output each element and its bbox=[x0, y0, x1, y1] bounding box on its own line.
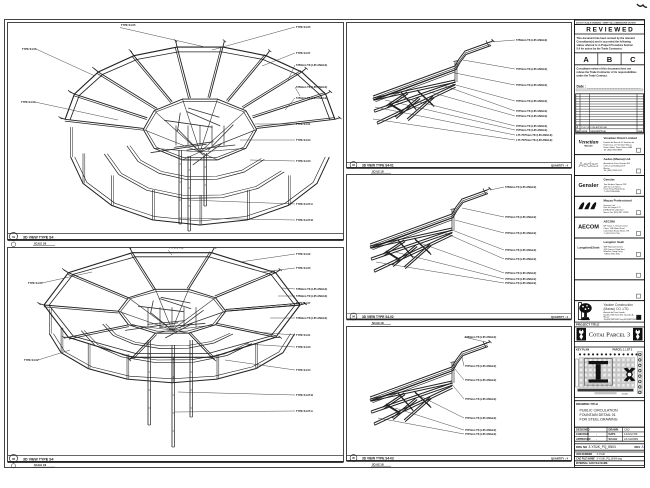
svg-text:7575mm TK (L65 ANGLE): 7575mm TK (L65 ANGLE) bbox=[465, 416, 496, 420]
svg-text:Macau Tel: (853) 287 12268: Macau Tel: (853) 287 12268 bbox=[604, 212, 630, 214]
svg-text:A: A bbox=[583, 55, 589, 64]
svg-text:7575mm TK (L65 ANGLE): 7575mm TK (L65 ANGLE) bbox=[465, 364, 496, 368]
svg-text:TYPE S4-02: TYPE S4-02 bbox=[21, 100, 36, 104]
svg-text:01: 01 bbox=[12, 235, 16, 239]
svg-text:TYPE S4-04: TYPE S4-04 bbox=[296, 368, 311, 372]
svg-text:3-YSUK_PQ_8N04: 3-YSUK_PQ_8N04 bbox=[589, 445, 617, 449]
svg-text:AECOM: AECOM bbox=[578, 225, 599, 231]
svg-text:7575mm TK (L65 ANGLE): 7575mm TK (L65 ANGLE) bbox=[516, 114, 547, 118]
svg-text:PROJECT TITLE: PROJECT TITLE bbox=[576, 323, 599, 327]
svg-text:(Macau) CO.,LTD.: (Macau) CO.,LTD. bbox=[604, 307, 630, 311]
svg-text:KEY PLAN: KEY PLAN bbox=[576, 347, 589, 351]
svg-text:DRG NO: DRG NO bbox=[576, 445, 588, 449]
svg-text:-: - bbox=[596, 438, 597, 441]
svg-text:R E V I E W E D: R E V I E W E D bbox=[586, 27, 633, 34]
svg-text:5759mm TK (L65 ANGLE): 5759mm TK (L65 ANGLE) bbox=[516, 38, 547, 42]
svg-text:7575mm TK (L65 ANGLE): 7575mm TK (L65 ANGLE) bbox=[465, 432, 496, 436]
svg-text:Aedas (Macau) Ltd.: Aedas (Macau) Ltd. bbox=[604, 157, 632, 161]
svg-text:7575mm TK (L65 ANGLE): 7575mm TK (L65 ANGLE) bbox=[505, 248, 536, 252]
svg-text:SCALE 1/8: SCALE 1/8 bbox=[34, 243, 47, 246]
svg-text:AECOM: AECOM bbox=[604, 219, 616, 223]
svg-text:5759mm TK (L65 ANGLE): 5759mm TK (L65 ANGLE) bbox=[296, 287, 327, 291]
svg-text:Venetian Orient Limited: Venetian Orient Limited bbox=[604, 136, 638, 140]
svg-text:TYPE S4-05 A: TYPE S4-05 A bbox=[296, 202, 313, 206]
svg-text:TYPE S4-01: TYPE S4-01 bbox=[296, 333, 311, 337]
svg-text:5.4 for action by the Trade Co: 5.4 for action by the Trade Contractor. bbox=[577, 47, 623, 51]
svg-text:Tel:(853)28972382 Fax:(853)28: Tel:(853)28972382 Fax:(853)28972383 bbox=[604, 319, 637, 321]
svg-text:SCALE 1/8: SCALE 1/8 bbox=[372, 463, 384, 466]
svg-text:7575mm TK (L65 ANGLE): 7575mm TK (L65 ANGLE) bbox=[505, 231, 536, 235]
svg-text:status referred to in Projec: status referred to in Project Procedure … bbox=[577, 43, 634, 47]
svg-text:5759mm TK (L65 ANGLE): 5759mm TK (L65 ANGLE) bbox=[296, 63, 327, 67]
svg-text:SCALE: SCALE bbox=[609, 437, 618, 441]
svg-text:TYPE S4-07: TYPE S4-07 bbox=[296, 51, 311, 55]
svg-text:3-YSUK_PQ_8N04.dwg: 3-YSUK_PQ_8N04.dwg bbox=[597, 458, 623, 461]
svg-text:7575mm TK (L65 ANGLE): 7575mm TK (L65 ANGLE) bbox=[516, 128, 547, 132]
svg-text:DATE: DATE bbox=[609, 432, 616, 436]
svg-text:5759mm TK (L65 ANGLE): 5759mm TK (L65 ANGLE) bbox=[296, 316, 327, 320]
svg-text:1:1000: 1:1000 bbox=[622, 394, 629, 396]
svg-text:7575mm TK (L65 ANGLE): 7575mm TK (L65 ANGLE) bbox=[516, 83, 547, 87]
svg-text:TYPE S4-05: TYPE S4-05 bbox=[22, 47, 37, 51]
svg-text:Langdon Seah: Langdon Seah bbox=[604, 240, 625, 244]
svg-text:TYPE S4-05: TYPE S4-05 bbox=[296, 25, 311, 29]
svg-text:T +852.2598.8500: T +852.2598.8500 bbox=[604, 191, 621, 193]
svg-text:DESIGNED: DESIGNED bbox=[576, 428, 590, 432]
svg-text:This document has been revised: This document has been revised by the re… bbox=[577, 36, 635, 40]
svg-text:REV: REV bbox=[635, 445, 641, 449]
svg-text:QUANTITY : 4: QUANTITY : 4 bbox=[551, 457, 569, 461]
svg-text:TYPE S4-01: TYPE S4-01 bbox=[296, 122, 311, 126]
svg-text:Langdon&Seah: Langdon&Seah bbox=[577, 246, 599, 250]
svg-text:relieve the Trade Contractor o: relieve the Trade Contractor of its resp… bbox=[577, 70, 638, 74]
svg-text:CAD FILE NAME: CAD FILE NAME bbox=[576, 458, 595, 461]
svg-text:3D VIEW TYPE S4-02: 3D VIEW TYPE S4-02 bbox=[362, 315, 394, 319]
svg-text:7575mm TK (L65 ANGLE): 7575mm TK (L65 ANGLE) bbox=[516, 109, 547, 113]
svg-text:TYPE S4-05 B: TYPE S4-05 B bbox=[296, 393, 313, 397]
svg-text:PUBLIC CIRCULATION: PUBLIC CIRCULATION bbox=[580, 408, 618, 412]
svg-text:CAD: CAD bbox=[624, 428, 630, 432]
svg-text:7575mm TK (L65 ANGLE): 7575mm TK (L65 ANGLE) bbox=[465, 397, 496, 401]
svg-text:A: A bbox=[577, 126, 579, 129]
svg-text:5759mm TK (L65 ANGLE): 5759mm TK (L65 ANGLE) bbox=[296, 96, 327, 100]
svg-text:QUANTITY : 4: QUANTITY : 4 bbox=[551, 315, 569, 319]
svg-text:JOB NUMBER: JOB NUMBER bbox=[576, 453, 592, 456]
svg-text:Macau Professional: Macau Professional bbox=[604, 199, 632, 203]
svg-text:Cᴏᴛᴀɪ Pᴀʀᴄᴇʟ 3: Cᴏᴛᴀɪ Pᴀʀᴄᴇʟ 3 bbox=[589, 332, 631, 339]
svg-text:TYPE S4-03: TYPE S4-03 bbox=[296, 159, 311, 163]
svg-text:C: C bbox=[630, 55, 636, 64]
svg-text:Gensler: Gensler bbox=[604, 178, 616, 182]
svg-text:TYPE S4-02: TYPE S4-02 bbox=[296, 252, 311, 256]
svg-text:-: - bbox=[596, 433, 597, 436]
svg-text:Consultant review of this docu: Consultant review of this document does … bbox=[577, 66, 632, 70]
svg-text:DESCRIPTION: DESCRIPTION bbox=[591, 131, 606, 133]
svg-text:T (852) 2830 3500: T (852) 2830 3500 bbox=[604, 254, 621, 256]
svg-text:DATE: DATE bbox=[582, 130, 588, 133]
svg-text:DRAWN: DRAWN bbox=[609, 428, 619, 432]
svg-text:7575mm TK (L65 ANGLE): 7575mm TK (L65 ANGLE) bbox=[505, 257, 536, 261]
svg-text:Date :: Date : bbox=[577, 85, 586, 89]
svg-text:PARCEL 1, LOT 2: PARCEL 1, LOT 2 bbox=[613, 348, 633, 351]
svg-text:FOUNTAIN DETAIL 01: FOUNTAIN DETAIL 01 bbox=[580, 413, 616, 417]
svg-text:AS SHOWN: AS SHOWN bbox=[624, 437, 638, 441]
svg-text:FOR STEEL DRAWING: FOR STEEL DRAWING bbox=[580, 418, 618, 422]
svg-text:SCALE 1/8: SCALE 1/8 bbox=[34, 464, 47, 467]
svg-text:INTERNAL CAD FILE NAME: INTERNAL CAD FILE NAME bbox=[576, 462, 608, 465]
svg-text:TYPE S4-02: TYPE S4-02 bbox=[24, 358, 39, 362]
svg-text:T +852 2317 7700: T +852 2317 7700 bbox=[604, 233, 621, 235]
svg-text:TYPE S4-05: TYPE S4-05 bbox=[28, 281, 43, 285]
svg-text:Venetian: Venetian bbox=[578, 139, 598, 145]
svg-text:FOR APPROVAL: FOR APPROVAL bbox=[591, 126, 609, 129]
svg-text:Consultants(s) and is accorded: Consultants(s) and is accorded the follo… bbox=[577, 39, 632, 43]
svg-text:CHK: CHK bbox=[638, 131, 643, 133]
svg-text:B: B bbox=[607, 55, 613, 64]
svg-text:14/JULY/09: 14/JULY/09 bbox=[624, 432, 638, 436]
svg-text:5759mm TK (L65 ANGLE): 5759mm TK (L65 ANGLE) bbox=[296, 294, 327, 298]
svg-text:3D VIEW TYPE S4: 3D VIEW TYPE S4 bbox=[23, 458, 54, 462]
svg-text:SCALE 1/8: SCALE 1/8 bbox=[372, 322, 384, 325]
svg-text:3D VIEW TYPE S4-01: 3D VIEW TYPE S4-01 bbox=[362, 164, 394, 168]
svg-text:7575mm TK (L65 ANGLE): 7575mm TK (L65 ANGLE) bbox=[465, 378, 496, 382]
svg-text:Tel: (853) 2833 1022: Tel: (853) 2833 1022 bbox=[604, 170, 623, 172]
svg-text:5759mm TK (L65 ANGLE): 5759mm TK (L65 ANGLE) bbox=[505, 185, 536, 189]
svg-text:DO NOT SCALE DRAWING. VERIFY A: DO NOT SCALE DRAWING. VERIFY ALL DIMENSI… bbox=[576, 21, 636, 24]
svg-text:7575mm TK (L65 ANGLE): 7575mm TK (L65 ANGLE) bbox=[465, 428, 496, 432]
svg-text:L75 7575mm TK (L65 ANGLE): L75 7575mm TK (L65 ANGLE) bbox=[516, 133, 553, 137]
svg-text:7575mm TK (L65 ANGLE): 7575mm TK (L65 ANGLE) bbox=[516, 99, 547, 103]
svg-text:7575mm TK (L65 ANGLE): 7575mm TK (L65 ANGLE) bbox=[516, 67, 547, 71]
svg-text:23.07.09: 23.07.09 bbox=[581, 127, 590, 129]
svg-text:5759mm TK (L65 ANGLE): 5759mm TK (L65 ANGLE) bbox=[296, 85, 327, 89]
svg-text:7575mm TK (L65 ANGLE): 7575mm TK (L65 ANGLE) bbox=[516, 124, 547, 128]
svg-text:5759mm TK (L65 ANGLE): 5759mm TK (L65 ANGLE) bbox=[465, 335, 496, 339]
svg-text:L75 7575mm TK (L65 ANGLE): L75 7575mm TK (L65 ANGLE) bbox=[516, 138, 553, 142]
svg-text:TYPE S4-05 A: TYPE S4-05 A bbox=[296, 409, 313, 413]
svg-text:TYPE S4-04: TYPE S4-04 bbox=[296, 138, 311, 142]
svg-text:TYPE S4-05 B: TYPE S4-05 B bbox=[296, 218, 313, 222]
svg-text:TYPE S4-03: TYPE S4-03 bbox=[296, 345, 311, 349]
svg-text:TYPE S4-05: TYPE S4-05 bbox=[121, 23, 136, 27]
svg-text:3D VIEW TYPE S4-03: 3D VIEW TYPE S4-03 bbox=[362, 457, 394, 461]
svg-text:MACAO: MACAO bbox=[584, 144, 593, 147]
svg-text:QUANTITY : 4: QUANTITY : 4 bbox=[551, 164, 569, 168]
svg-text:DRAWING TITLE: DRAWING TITLE bbox=[576, 402, 598, 406]
svg-text:SCALE 1/8: SCALE 1/8 bbox=[372, 170, 384, 173]
svg-text:02: 02 bbox=[12, 457, 16, 461]
svg-text:7575mm TK (L65 ANGLE): 7575mm TK (L65 ANGLE) bbox=[505, 281, 536, 285]
svg-text:7575mm TK (L65 ANGLE): 7575mm TK (L65 ANGLE) bbox=[505, 271, 536, 275]
svg-text:3-YSUK: 3-YSUK bbox=[597, 453, 606, 456]
svg-text:3D VIEW TYPE S4: 3D VIEW TYPE S4 bbox=[23, 236, 54, 240]
svg-text:7575mm TK (L65 ANGLE): 7575mm TK (L65 ANGLE) bbox=[505, 215, 536, 219]
svg-text:Tel: (853) 2882 8888: Tel: (853) 2882 8888 bbox=[604, 149, 623, 151]
svg-text:TYPE S4-07: TYPE S4-07 bbox=[296, 301, 311, 305]
svg-text:APPROVED: APPROVED bbox=[576, 437, 591, 441]
svg-text:Aedas: Aedas bbox=[579, 162, 599, 169]
svg-text:under the Trade Contract.: under the Trade Contract. bbox=[577, 74, 608, 78]
svg-text:Gensler: Gensler bbox=[578, 183, 599, 189]
svg-text:REV: REV bbox=[576, 131, 581, 133]
svg-text:CHECKED: CHECKED bbox=[576, 432, 589, 436]
svg-text:TYPE S4-05: TYPE S4-05 bbox=[296, 266, 311, 270]
svg-text:7575mm TK (L65 ANGLE): 7575mm TK (L65 ANGLE) bbox=[505, 277, 536, 281]
